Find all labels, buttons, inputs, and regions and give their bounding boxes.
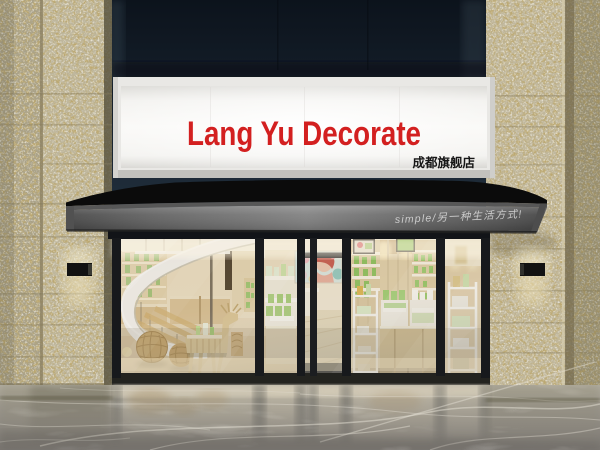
svg-text:成都旗舰店: 成都旗舰店 xyxy=(412,155,475,170)
svg-text:Lang Yu Decorate: Lang Yu Decorate xyxy=(187,115,421,153)
